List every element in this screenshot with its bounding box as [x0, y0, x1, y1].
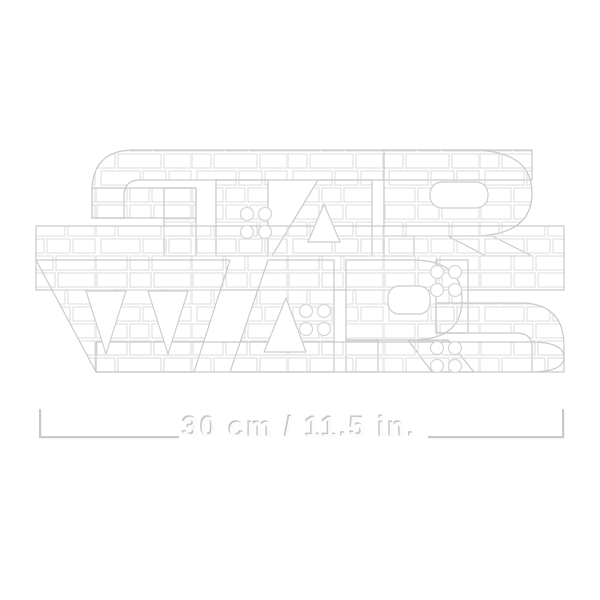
dimension-label: 30 cm / 11.5 in. [150, 412, 450, 445]
dimension-tick-left [39, 409, 41, 438]
dimension-line-right [428, 436, 564, 438]
star-wars-brick-logo-line-art [0, 0, 600, 600]
product-image-canvas: 30 cm / 11.5 in. [0, 0, 600, 600]
dimension-tick-right [562, 409, 564, 438]
letter-r-top-counter [430, 182, 488, 208]
letter-r-bottom-counter [388, 286, 430, 314]
